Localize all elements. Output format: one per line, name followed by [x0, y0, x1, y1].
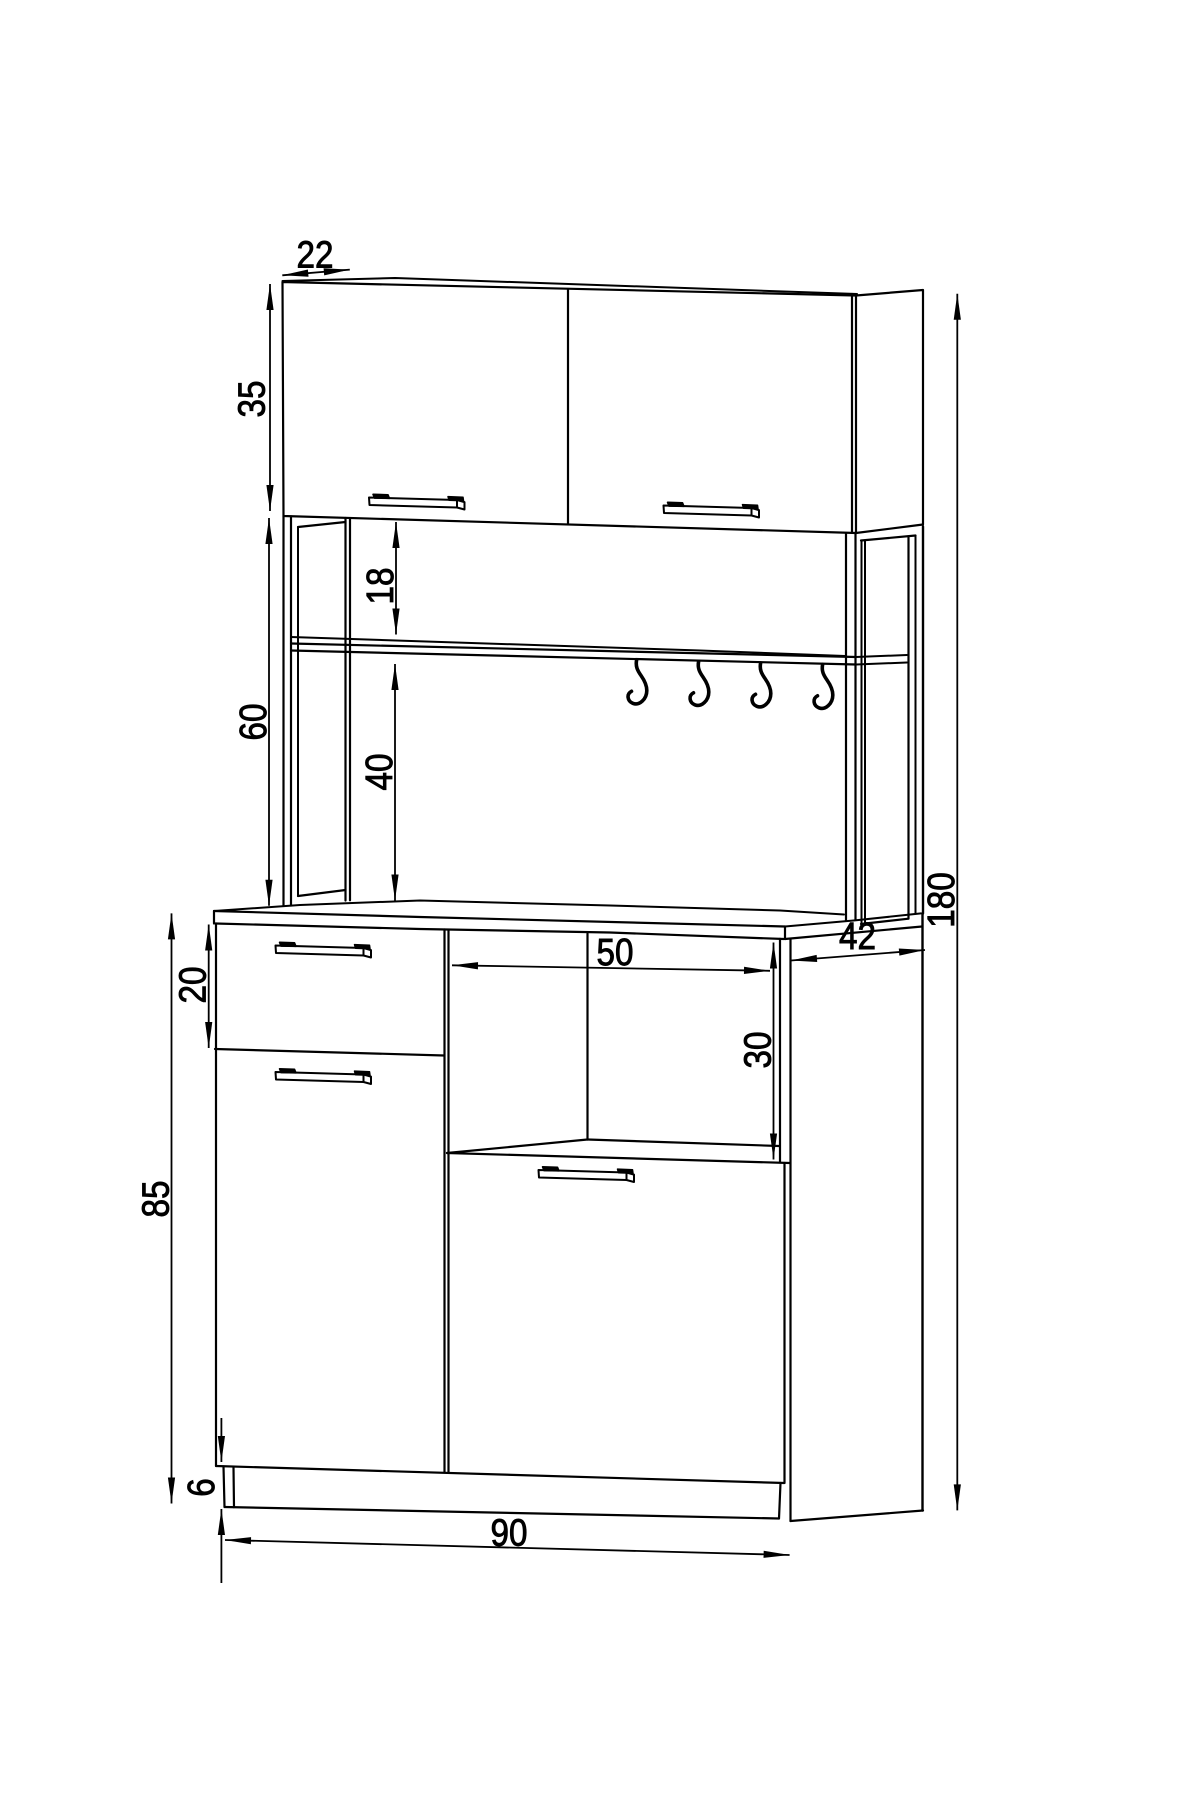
svg-text:6: 6 — [180, 1478, 223, 1496]
svg-text:90: 90 — [491, 1511, 528, 1554]
svg-text:85: 85 — [134, 1181, 177, 1218]
svg-text:180: 180 — [920, 872, 963, 927]
svg-text:22: 22 — [297, 233, 334, 276]
svg-text:60: 60 — [232, 704, 275, 741]
svg-text:40: 40 — [358, 754, 401, 791]
svg-text:42: 42 — [839, 915, 876, 958]
svg-text:50: 50 — [597, 931, 634, 974]
svg-text:18: 18 — [359, 568, 402, 605]
svg-text:30: 30 — [736, 1032, 779, 1069]
svg-text:20: 20 — [171, 967, 214, 1004]
svg-text:35: 35 — [230, 381, 273, 418]
